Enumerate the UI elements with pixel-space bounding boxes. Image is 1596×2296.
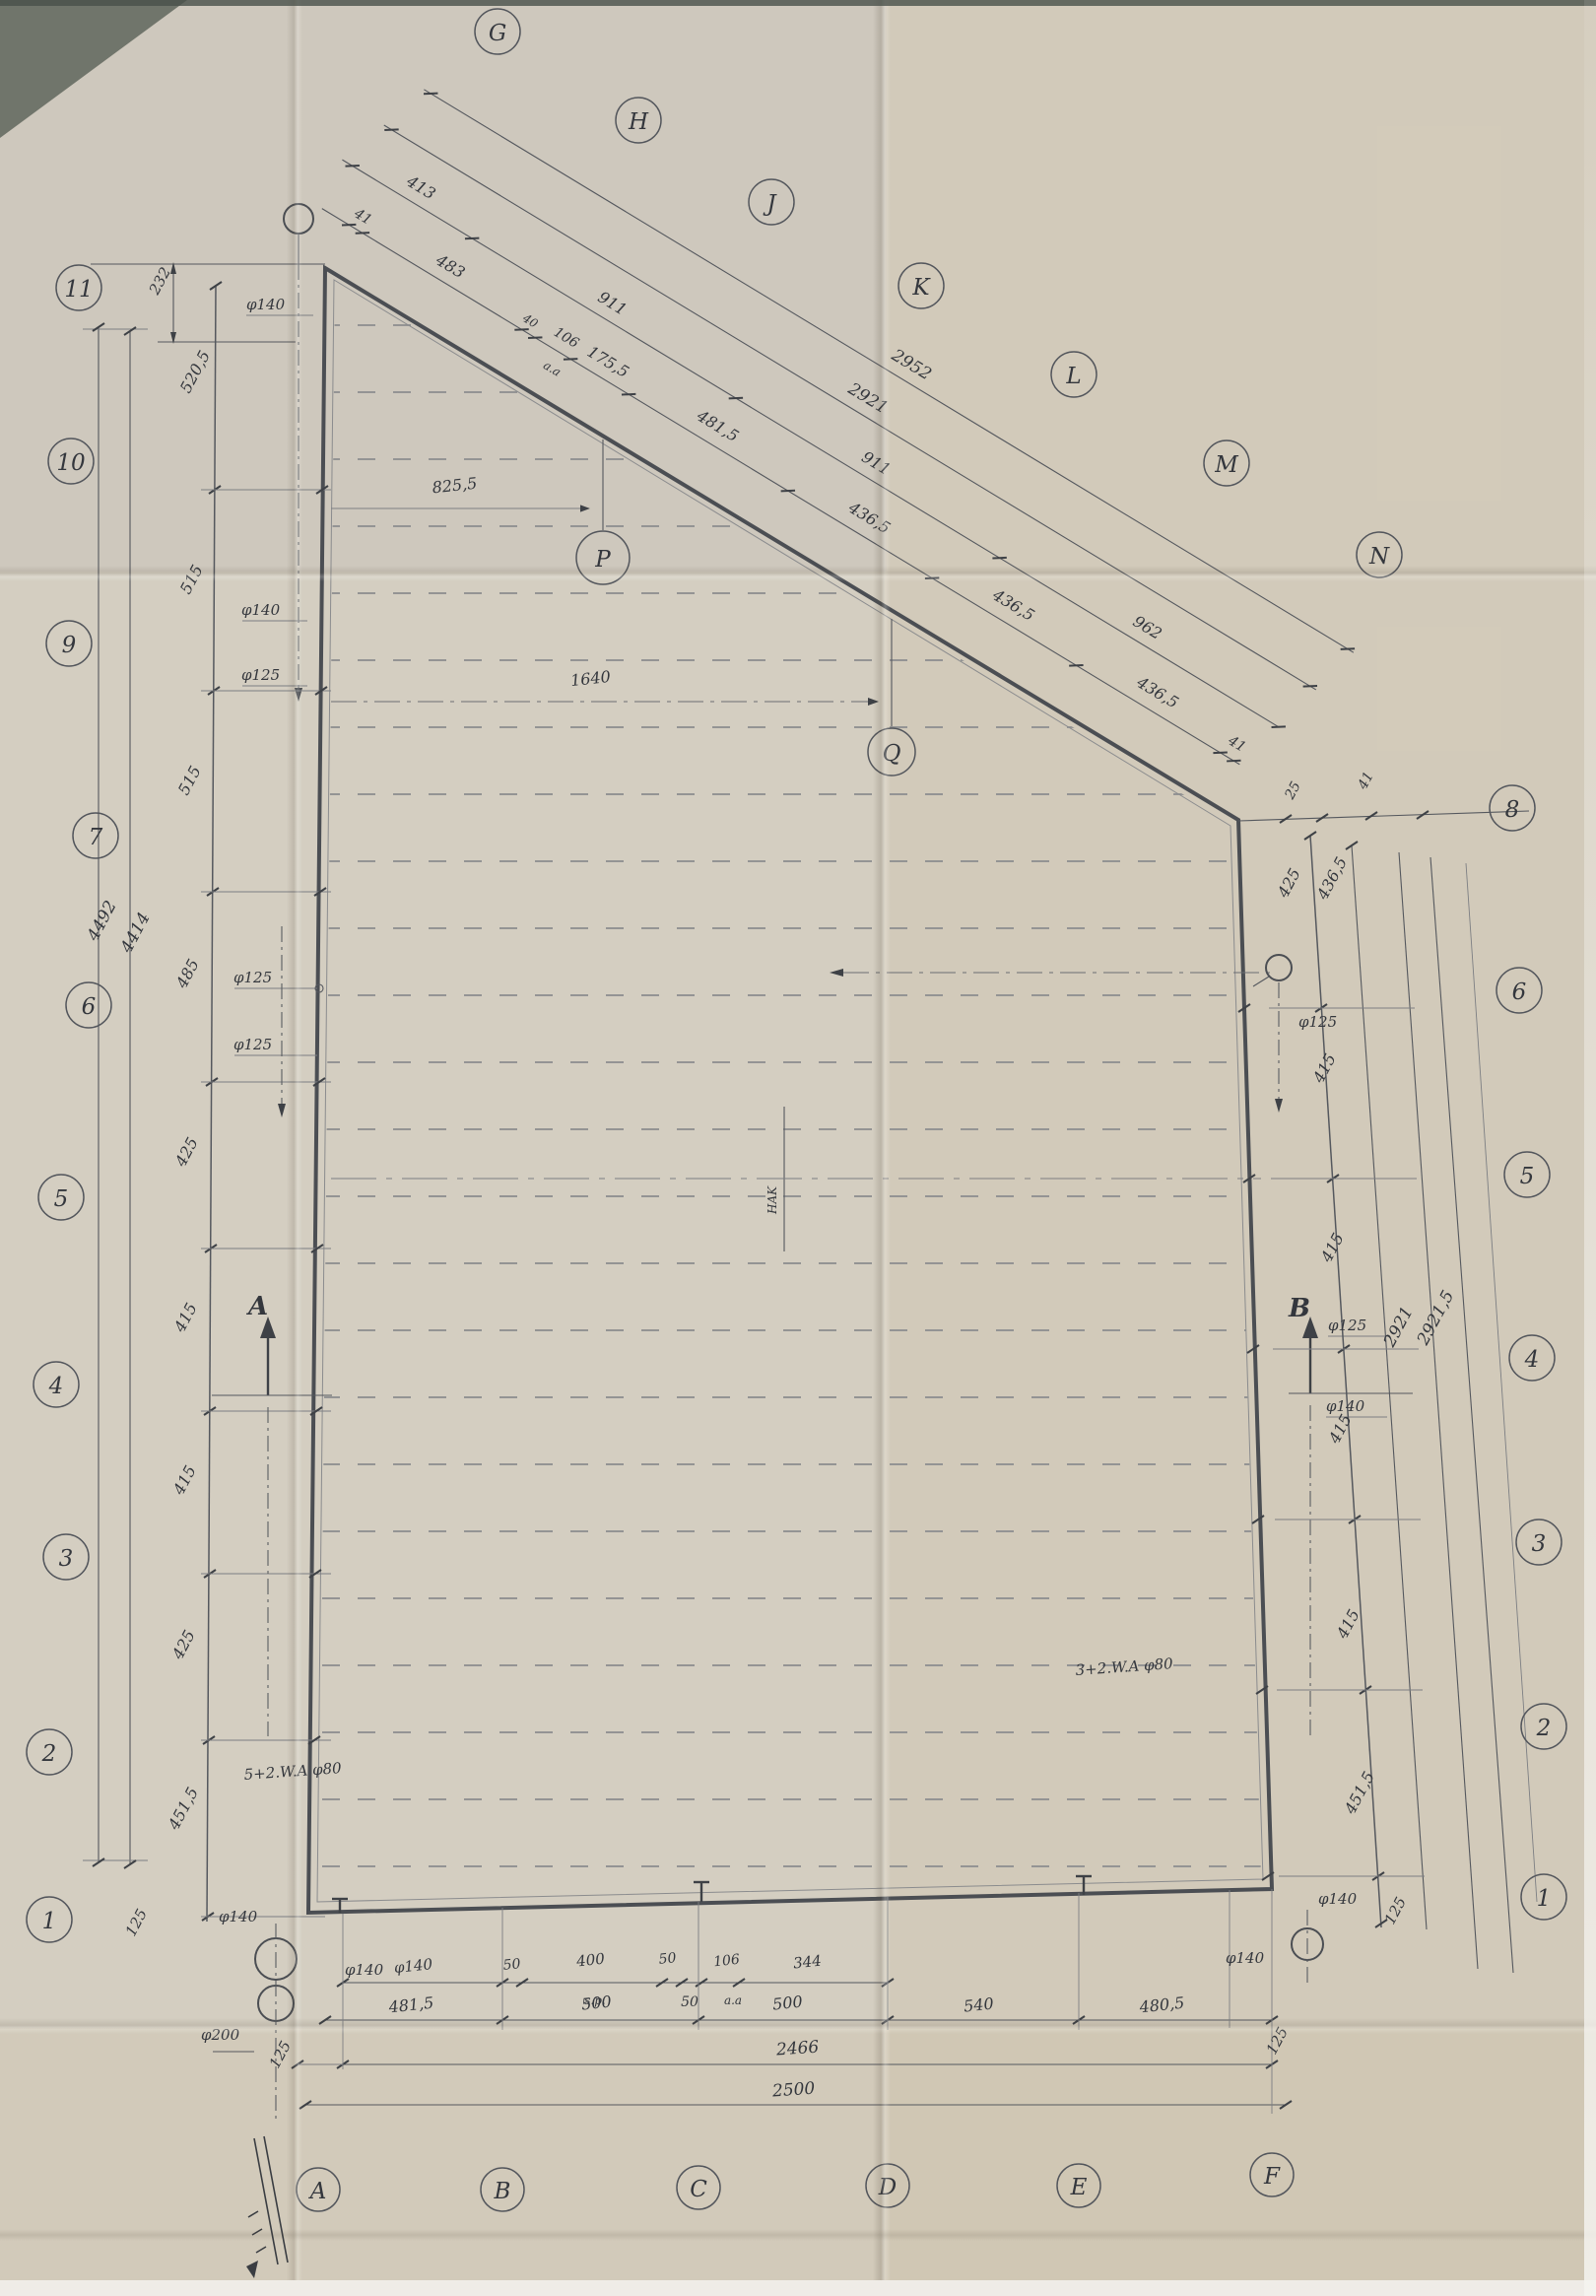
diag-dim: 436,5	[844, 498, 894, 538]
phi-callout: φ125	[1328, 1317, 1366, 1334]
svg-text:L: L	[1065, 364, 1081, 389]
dim-232: 232	[145, 264, 174, 299]
dim-bottom-mid: 500	[771, 1992, 803, 2013]
dim-left-seg: 415	[169, 1300, 201, 1336]
svg-text:4: 4	[48, 1374, 64, 1399]
grid-node-4L: 4	[33, 1362, 79, 1407]
dim-bottom-small: 344	[792, 1952, 822, 1973]
dim-right-seg: 415	[1324, 1411, 1356, 1448]
grid-node-C: C	[677, 2166, 720, 2209]
dim-left-seg: 415	[168, 1462, 200, 1499]
diag-dim-overall: 2921	[843, 378, 891, 418]
grid-node-1L: 1	[27, 1897, 72, 1942]
dim-bottom-small: 106	[712, 1952, 740, 1971]
diag-dim: 40	[519, 310, 540, 331]
diag-dim-sub: a.a	[541, 358, 564, 378]
diag-dim: 413	[403, 171, 439, 204]
svg-text:G: G	[489, 21, 506, 46]
phi-callout: φ140	[241, 601, 281, 619]
dim-right-top: 436,5	[1312, 854, 1351, 904]
grid-node-J: J	[749, 179, 794, 225]
grid-node-D: D	[866, 2164, 909, 2207]
grid-node-M: M	[1204, 440, 1249, 486]
dim-knee: 41	[1355, 770, 1377, 793]
grid-node-H: H	[616, 98, 661, 143]
svg-text:B: B	[494, 2179, 511, 2204]
grid-node-B: B	[481, 2168, 524, 2211]
grid-node-10: 10	[48, 439, 94, 484]
dim-bottom-small-sub: a.a	[724, 1993, 742, 2007]
dim-left-bottom: 125	[122, 1906, 151, 1939]
svg-text:8: 8	[1505, 797, 1520, 823]
diag-dim: 911	[595, 288, 631, 319]
svg-text:C: C	[690, 2177, 707, 2202]
dim-right-seg: 415	[1332, 1606, 1363, 1643]
dim-left-overall: 4492	[83, 898, 120, 945]
svg-text:M: M	[1214, 452, 1239, 478]
phi-callout: φ125	[233, 1036, 272, 1053]
diag-dim: 911	[858, 447, 894, 479]
svg-text:N: N	[1368, 544, 1390, 570]
svg-text:5: 5	[1520, 1164, 1535, 1189]
grid-node-F: F	[1250, 2153, 1294, 2196]
grid-node-E: E	[1057, 2164, 1100, 2207]
dim-left-seg: 451,5	[164, 1785, 202, 1834]
dim-left-seg: 515	[174, 763, 205, 798]
diag-dim: 962	[1130, 612, 1165, 643]
dim-left-seg: 485	[171, 956, 203, 992]
diag-dim-overall: 2952	[888, 345, 935, 384]
grid-node-2L: 2	[27, 1729, 72, 1775]
svg-text:4: 4	[1524, 1347, 1540, 1373]
svg-text:2: 2	[1536, 1716, 1552, 1741]
grid-node-6R: 6	[1496, 968, 1542, 1013]
svg-text:2: 2	[41, 1741, 57, 1767]
grid-node-N: N	[1357, 532, 1402, 577]
dim-bottom-offset: 125	[1263, 2024, 1292, 2058]
dim-right-seg: 415	[1308, 1050, 1340, 1087]
phi-callout: φ140	[1226, 1949, 1265, 1967]
dim-bottom-mid: 500	[580, 1992, 612, 2013]
diag-dim: 41	[1225, 732, 1248, 755]
grid-node-2R: 2	[1521, 1704, 1566, 1749]
dim-bottom-small: 50	[502, 1956, 521, 1974]
diag-dim: 436,5	[1133, 672, 1182, 712]
grid-node-3R: 3	[1516, 1519, 1562, 1565]
dim-left-overall: 4414	[116, 910, 154, 957]
svg-text:1: 1	[42, 1909, 57, 1934]
blueprint-photo: 41 483 40 106 a.a 175,5 481,5 436,5 436,…	[0, 0, 1596, 2296]
svg-text:K: K	[911, 275, 931, 301]
phi-callout: φ125	[1298, 1013, 1337, 1031]
diag-dim: 483	[432, 250, 469, 283]
dim-left-seg: 515	[176, 562, 207, 597]
dim-bottom-offset: 125	[266, 2038, 295, 2071]
svg-text:D: D	[878, 2175, 897, 2200]
grid-node-8: 8	[1490, 785, 1535, 831]
phi-callout: φ140	[219, 1908, 258, 1925]
dim-bottom-overall: 2466	[774, 2038, 820, 2060]
dim-right-overall: 2921,5	[1413, 1287, 1458, 1349]
grid-node-3L: 3	[43, 1534, 89, 1580]
phi-callout: φ200	[201, 2026, 240, 2044]
svg-text:J: J	[763, 191, 777, 217]
dim-right-top: 425	[1273, 865, 1304, 902]
dim-bottom-small: 400	[574, 1950, 606, 1971]
grid-node-A: A	[297, 2168, 340, 2211]
svg-text:1: 1	[1537, 1886, 1552, 1912]
grid-node-L: L	[1051, 352, 1097, 397]
column-symbol-right	[1266, 955, 1292, 980]
svg-text:6: 6	[82, 994, 97, 1020]
grid-node-7: 7	[73, 813, 118, 858]
svg-text:9: 9	[62, 633, 77, 658]
dim-left-seg: 520,5	[176, 348, 214, 396]
dim-bottom-small: 50	[658, 1950, 677, 1968]
dim-right-seg: 415	[1316, 1230, 1348, 1266]
phi-callout: φ140	[1318, 1890, 1358, 1908]
grid-node-1R: 1	[1521, 1874, 1566, 1920]
dim-bottom-small: φ140	[393, 1955, 433, 1977]
grid-node-9: 9	[46, 621, 92, 666]
svg-text:P: P	[594, 547, 611, 573]
phi-callout: φ125	[233, 969, 272, 986]
section-marker-A: A	[245, 1292, 268, 1321]
phi-callout: φ140	[345, 1961, 384, 1979]
grid-node-11: 11	[56, 265, 101, 310]
phi-callout: φ140	[1326, 1397, 1365, 1415]
dim-bottom-mid: 480,5	[1138, 1993, 1186, 2017]
dim-left-seg: 425	[170, 1134, 202, 1171]
grid-node-5L: 5	[38, 1175, 84, 1220]
diag-dim: 481,5	[693, 406, 742, 446]
svg-text:3: 3	[1532, 1531, 1547, 1557]
diag-dim: 106	[551, 324, 581, 352]
phi-callout: φ140	[246, 296, 286, 313]
handwritten-annotation	[246, 2136, 288, 2278]
grid-node-4R: 4	[1509, 1335, 1555, 1381]
svg-text:H: H	[628, 109, 649, 135]
dim-bottom-overall: 2500	[770, 2079, 816, 2102]
dim-bottom-small: 50	[681, 1994, 698, 2010]
svg-text:6: 6	[1512, 979, 1527, 1005]
svg-text:E: E	[1070, 2175, 1088, 2200]
phi-callout: φ125	[241, 666, 280, 684]
svg-text:11: 11	[64, 277, 93, 303]
svg-text:F: F	[1263, 2164, 1281, 2190]
svg-text:3: 3	[59, 1546, 74, 1572]
grid-node-G: G	[475, 9, 520, 54]
hak-label: HAK	[765, 1185, 779, 1215]
dim-bottom-mid: 481,5	[387, 1993, 435, 2017]
svg-text:A: A	[308, 2179, 327, 2204]
dim-knee: 25	[1282, 779, 1304, 803]
column-symbol-topleft	[284, 204, 313, 234]
grid-node-6L: 6	[66, 982, 111, 1028]
diag-dim: 436,5	[989, 585, 1038, 626]
dim-bottom-mid: 540	[963, 1993, 994, 2015]
dim-right-seg: 125	[1381, 1894, 1410, 1927]
grid-node-K: K	[898, 263, 944, 308]
svg-text:Q: Q	[883, 741, 901, 767]
grid-node-5R: 5	[1504, 1152, 1550, 1197]
dim-left-seg: 425	[167, 1627, 199, 1663]
svg-text:7: 7	[89, 825, 103, 850]
diag-dim: 175,5	[584, 342, 632, 381]
drawing-linework: 41 483 40 106 a.a 175,5 481,5 436,5 436,…	[0, 0, 1596, 2296]
svg-text:5: 5	[54, 1186, 69, 1212]
section-marker-B: B	[1288, 1294, 1310, 1323]
svg-text:10: 10	[56, 450, 85, 476]
